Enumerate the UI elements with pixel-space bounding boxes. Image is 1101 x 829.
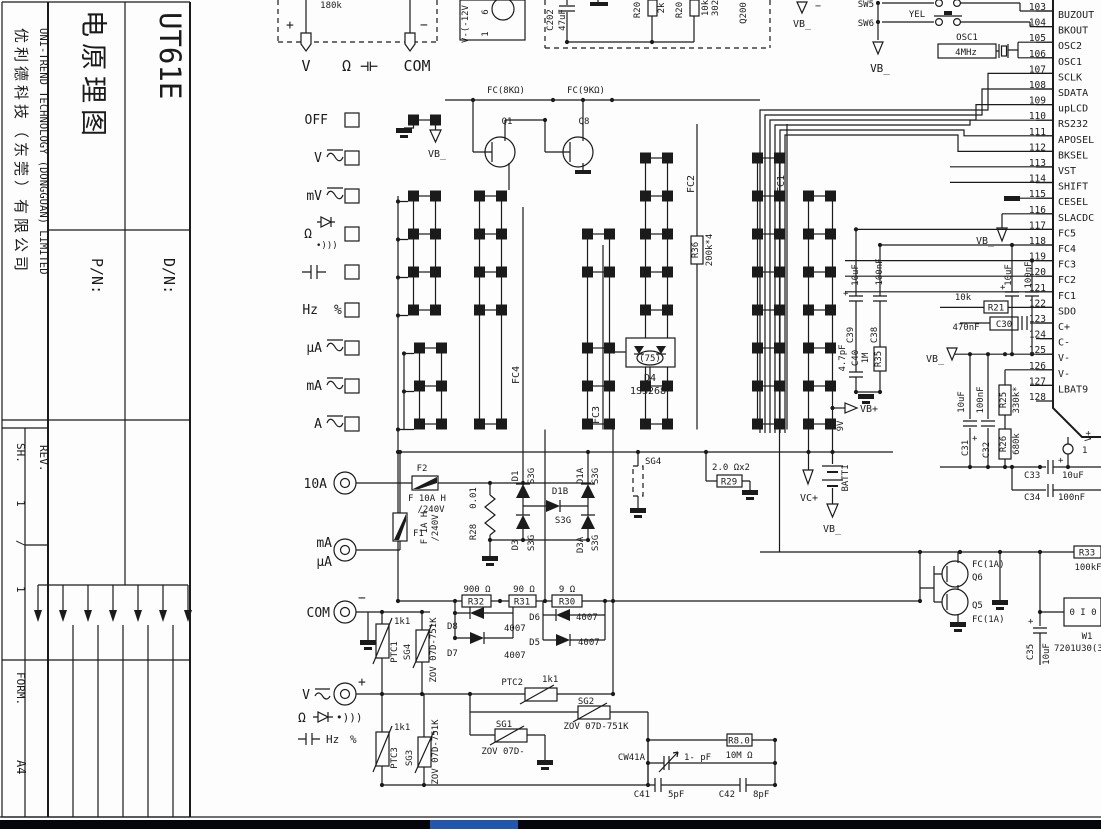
- pin-label: FC2: [1058, 275, 1076, 286]
- c40-ref: C40: [851, 350, 861, 366]
- junction-dot: [968, 352, 972, 356]
- switch-contact: [436, 343, 447, 354]
- jack-ma-label: mA: [316, 536, 332, 551]
- c38-ref: C38: [870, 327, 880, 343]
- d8-ref: D8: [447, 622, 458, 632]
- rotary-label: OFF: [305, 113, 329, 128]
- pushbutton-section: SW5 SW6 YEL VB_ OSC1 4MHz: [858, 0, 1053, 75]
- c30-value: 470nF: [952, 323, 979, 333]
- vb-minus-arrow-icon: [797, 2, 807, 13]
- sw6-label: SW6: [858, 19, 874, 29]
- rotary-label: mA: [306, 379, 322, 394]
- q5-ref: Q5: [972, 601, 983, 611]
- pin-label: V-: [1058, 353, 1070, 364]
- f1-rating-2: /240V: [431, 514, 441, 542]
- d7-ref: D7: [447, 649, 458, 659]
- q6-transistor: [942, 561, 968, 587]
- junction-dot: [646, 738, 650, 742]
- com-minus: −: [358, 591, 366, 606]
- junction-dot: [1066, 465, 1070, 469]
- r31-value: 90 Ω: [513, 585, 535, 595]
- acdc-icon: [327, 378, 343, 389]
- r202-body: [690, 0, 699, 16]
- ground-icon: [360, 640, 376, 645]
- ptc1-ref: PTC1: [390, 641, 400, 663]
- sg4-spark-gap: SG4: [630, 452, 661, 518]
- junction-dot: [1030, 352, 1034, 356]
- resistor-180k-value: 180k: [320, 1, 342, 11]
- junction-dot: [603, 599, 607, 603]
- d3-type: S3G: [527, 535, 537, 551]
- taskbar: [0, 820, 1101, 829]
- q5-type: FC(1A): [972, 615, 1005, 625]
- d4-mark: (75): [639, 354, 661, 364]
- junction-dot: [773, 783, 777, 787]
- switch-contact: [825, 305, 836, 316]
- d5-ref: D5: [529, 638, 540, 648]
- switch-contact: [640, 153, 651, 164]
- ground-icon: [950, 622, 966, 627]
- c42-value: 8pF: [753, 790, 769, 800]
- r36-resistor: R36 200k*4: [691, 234, 715, 267]
- jack-v-label: V: [302, 688, 310, 703]
- junction-dot: [650, 40, 654, 44]
- percent-label: %: [350, 733, 357, 746]
- pin-label: BUZOUT: [1058, 10, 1094, 21]
- junction-dot: [396, 275, 400, 279]
- sg2-ref: SG2: [578, 697, 594, 707]
- osc1-label: OSC1: [956, 33, 978, 43]
- q8-type: FC(9KΩ): [567, 86, 605, 96]
- ohm-symbol: Ω: [298, 711, 306, 726]
- d1-type: S3G: [527, 468, 537, 484]
- switch-contact: [430, 191, 441, 202]
- rotary-checkbox: [345, 417, 359, 431]
- c33-ref: C33: [1024, 471, 1040, 481]
- junction-dot: [878, 390, 882, 394]
- junction-dot: [402, 351, 406, 355]
- junction-dot: [854, 227, 858, 231]
- rotary-label: Hz: [302, 303, 318, 318]
- fc4-net-label: FC4: [511, 366, 522, 384]
- pin-label: C-: [1058, 338, 1070, 349]
- f1-rating-1: F 1A H: [420, 512, 430, 545]
- junction-dot: [806, 450, 810, 454]
- f2-ref: F2: [417, 464, 428, 474]
- r201-ref: R20: [633, 2, 643, 18]
- r28-ref: R28: [469, 524, 479, 540]
- vb-minus-label: VB_: [823, 524, 842, 535]
- d3a-type: S3G: [591, 535, 601, 551]
- v-plus-label: V+: [1084, 430, 1094, 441]
- pn-label: P/N:: [88, 258, 106, 294]
- polarity-plus: +: [843, 289, 849, 299]
- r33-ref: R33: [1079, 549, 1095, 559]
- rotary-function-list: OFFVmVΩ•)))Hz%µAmAA: [302, 113, 359, 432]
- form-label: FORM.: [14, 672, 27, 705]
- paper-size: A4: [14, 760, 28, 774]
- d3-ref: D3: [511, 540, 521, 551]
- r31-ref: R31: [514, 598, 530, 608]
- sg1-type: ZOV 07D-: [481, 747, 524, 757]
- c34-value: 100nF: [1058, 493, 1085, 503]
- sw5-label: SW5: [858, 0, 874, 10]
- pin-label: SCLK: [1058, 72, 1082, 83]
- pin-label: SLACDC: [1058, 213, 1094, 224]
- sh-label: SH.: [14, 443, 27, 463]
- vb-minus-label: VB_: [793, 19, 812, 30]
- r25-ref: R25: [999, 392, 1009, 408]
- d6-part: 4007: [576, 613, 598, 623]
- d8-part: 4007: [504, 624, 526, 634]
- junction-dot: [986, 465, 990, 469]
- right-rail-section: VB_ 10uF C31 + 100nF C32 R25 330k* R26 6…: [926, 348, 1101, 503]
- c40-value: 4.7pF: [838, 344, 848, 371]
- junction-dot: [402, 389, 406, 393]
- company-name-en: UNI-TREND TECHNOLOGY (DONGGUAN) LIMITED: [37, 28, 49, 275]
- ptc2-value: 1k1: [542, 675, 558, 685]
- junction-dot: [380, 610, 384, 614]
- jack-10a-label: 10A: [304, 477, 328, 492]
- c41-ref: C41: [634, 790, 650, 800]
- rotary-label: A: [314, 417, 322, 432]
- probe-v-label: V: [301, 57, 310, 75]
- vb-minus-label: VB_: [926, 354, 945, 365]
- switch-contact: [825, 267, 836, 278]
- regulator-pin1: 1: [481, 31, 491, 36]
- rotary-checkbox: [345, 265, 359, 279]
- junction-dot: [611, 692, 615, 696]
- junction-dot: [396, 427, 400, 431]
- junction-dot: [998, 550, 1002, 554]
- switch-contact: [825, 191, 836, 202]
- r36-ref: R36: [691, 242, 701, 258]
- ptc1-value: 1k1: [394, 617, 410, 627]
- q1-transistor: FC(8KΩ) Q1: [473, 86, 545, 190]
- probe-com-label: COM: [403, 57, 430, 75]
- r8-value: 10M Ω: [725, 751, 753, 761]
- switch-contact: [604, 229, 615, 240]
- junction-dot: [453, 611, 457, 615]
- junction-dot: [586, 538, 590, 542]
- q8-ref: Q8: [579, 117, 590, 127]
- junction-dot: [704, 450, 708, 454]
- switch-contact: [414, 343, 425, 354]
- junction-dot: [453, 636, 457, 640]
- yel-label: YEL: [909, 10, 925, 20]
- w1-positions: 0 I 0: [1069, 608, 1096, 618]
- vb-plus-label: VB+: [860, 404, 878, 415]
- junction-dot: [1038, 550, 1042, 554]
- capacitance-icon: [302, 265, 326, 279]
- junction-dot: [876, 20, 880, 24]
- acdc-icon: [315, 689, 330, 699]
- junction-dot: [958, 550, 962, 554]
- d4-diode-pair: (75) D4 1SS268: [612, 338, 675, 397]
- capacitance-icon: [298, 733, 320, 745]
- acdc-icon: [327, 416, 343, 427]
- pin-label: SDO: [1058, 306, 1076, 317]
- ic-pin-list: 103BUZOUT104BKOUT105OSC2106OSC1107SCLK10…: [1029, 2, 1094, 403]
- switch-contact: [825, 419, 836, 430]
- junction-dot: [498, 599, 502, 603]
- sw5-contact-icon: [954, 0, 961, 6]
- junction-dot: [611, 599, 615, 603]
- switch-contact: [496, 191, 507, 202]
- r28-value: 0.01: [469, 487, 479, 509]
- junction-dot: [830, 450, 834, 454]
- junction-dot: [1010, 352, 1014, 356]
- switch-contact: [825, 381, 836, 392]
- sheet-total: 1: [14, 586, 27, 593]
- q1-type: FC(8KΩ): [487, 86, 525, 96]
- filter-cap-block: + 10uF C39 100nF C38 4.7pF C40 R35 1M VB…: [833, 229, 888, 415]
- junction-dot: [420, 692, 424, 696]
- junction-dot: [543, 118, 547, 122]
- pin-label: RS232: [1058, 119, 1088, 130]
- junction-dot: [396, 599, 400, 603]
- polarity-plus: +: [1000, 283, 1006, 293]
- rotary-checkbox: [345, 189, 359, 203]
- d1b-type: S3G: [555, 516, 571, 526]
- f2-rating-1: F 10A H: [408, 494, 446, 504]
- off-row-parts: VB_: [396, 125, 447, 161]
- c31-plus: +: [972, 434, 978, 444]
- q200-ref: Q200: [739, 2, 749, 24]
- r36-value: 200k*4: [705, 234, 715, 267]
- junction-dot: [453, 599, 457, 603]
- r35-ref: R35: [874, 351, 884, 367]
- q6-type: FC(1A): [972, 560, 1005, 570]
- d1a-ref: D1A: [576, 467, 586, 484]
- switch-contact: [825, 343, 836, 354]
- doc-title: 电原理图: [77, 10, 108, 142]
- r30-ref: R30: [559, 598, 575, 608]
- pin-label: C+: [1058, 322, 1070, 333]
- d4-part: 1SS268: [630, 386, 666, 397]
- c34-ref: C34: [1024, 493, 1040, 503]
- protection-section: PTC2 1k1 SG2 ZOV 07D-751K SG1 ZOV 07D-: [470, 675, 648, 785]
- rotary-label: Ω: [304, 227, 312, 242]
- regulator-label: V-(-12V: [461, 4, 471, 43]
- pin1-circle-icon: [1063, 444, 1073, 454]
- c33-plus: +: [1058, 456, 1064, 466]
- matrix-column-wires: [398, 124, 833, 694]
- cw41a-ref: CW41A: [618, 753, 646, 763]
- switch-contact: [803, 191, 814, 202]
- junction-dot: [986, 352, 990, 356]
- rotary-checkbox: [345, 379, 359, 393]
- c39-value: 10uF: [851, 264, 861, 286]
- sg3-type: ZOV 07D-751K: [431, 719, 441, 785]
- pin-label: V-: [1058, 369, 1070, 380]
- junction-dot: [636, 450, 640, 454]
- d1b-ref: D1B: [552, 487, 568, 497]
- junction-dot: [1030, 259, 1034, 263]
- title-block: 优利德科技（东莞）有限公司 UNI-TREND TECHNOLOGY (DONG…: [2, 2, 192, 817]
- d7-part: 4007: [504, 651, 526, 661]
- r201-value: 2k: [657, 2, 667, 13]
- lower-left-section: COM − 1k1 PTC1 SG4 ZOV 07D-751K V + Ω •)…: [298, 591, 470, 785]
- sg3-ref: SG3: [405, 750, 415, 766]
- w1-part: 7201U30(3: [1054, 644, 1101, 654]
- junction-dot: [551, 98, 555, 102]
- junction-dot: [646, 783, 650, 787]
- sw5-contact-icon: [936, 0, 943, 6]
- junction-dot: [521, 481, 525, 485]
- switch-contact: [774, 153, 785, 164]
- rotary-label: µA: [306, 341, 322, 356]
- jack-com-label: COM: [307, 606, 331, 621]
- c32-ref: C32: [982, 442, 992, 458]
- junction-dot: [773, 761, 777, 765]
- r202-ref: R20: [675, 2, 685, 18]
- fc2-net-label: FC2: [686, 175, 697, 193]
- junction-dot: [396, 313, 400, 317]
- junction-dot: [565, 40, 569, 44]
- sheet-number: 1: [14, 500, 27, 507]
- pin-label: FC4: [1058, 244, 1076, 255]
- c41-value: 5pF: [668, 790, 684, 800]
- c42-ref: C42: [719, 790, 735, 800]
- junction-dot: [1010, 243, 1014, 247]
- junction-dot: [420, 610, 424, 614]
- junction-dot: [581, 98, 585, 102]
- battery-voltage: 9V: [836, 420, 846, 431]
- junction-dot: [830, 406, 834, 410]
- acdc-icon: [327, 188, 343, 199]
- r32-ref: R32: [468, 598, 484, 608]
- rotary-checkbox: [345, 227, 359, 241]
- pin-label: SDATA: [1058, 88, 1088, 99]
- junction-dot: [422, 783, 426, 787]
- pin-label: OSC2: [1058, 41, 1082, 52]
- junction-dot: [380, 692, 384, 696]
- junction-dot: [488, 481, 492, 485]
- junction-dot: [878, 243, 882, 247]
- rotary-checkbox: [345, 303, 359, 317]
- company-name-cn: 优利德科技（东莞）有限公司: [12, 28, 30, 275]
- pin-label: OSC1: [1058, 57, 1082, 68]
- vb-minus-arrow-icon: [827, 504, 838, 517]
- switch-contact: [662, 153, 673, 164]
- power-supply-section: V-(-12V 6 1 C202 47uF R20 2k R20 10k 302…: [460, 0, 821, 48]
- model-number: UT61E: [153, 12, 187, 99]
- probe-ohm-cap-label: Ω ⊣⊢: [342, 57, 378, 75]
- d1a-type: S3G: [591, 468, 601, 484]
- pin-label: CESEL: [1058, 197, 1088, 208]
- q1-ref: Q1: [502, 117, 513, 127]
- title-arrow-bus: [34, 420, 192, 817]
- c32-value: 100nF: [976, 386, 986, 413]
- ground-icon: [575, 170, 591, 174]
- r29-value: 2.0 Ωx2: [712, 463, 750, 473]
- jack-ua-label: µA: [316, 555, 332, 570]
- batt1-ref: BATT1: [841, 464, 851, 491]
- c39-ref: C39: [846, 327, 856, 343]
- part-302: 302: [711, 0, 721, 16]
- pin-label: upLCD: [1058, 104, 1088, 115]
- pin-label: BKOUT: [1058, 26, 1088, 37]
- pin-label: LBAT9: [1058, 384, 1088, 395]
- r29-resistor: 2.0 Ωx2 R29: [706, 452, 758, 500]
- junction-dot: [398, 450, 402, 454]
- junction-dot: [968, 465, 972, 469]
- vb-plus-arrow-icon: [845, 403, 857, 413]
- sw6-contact-icon: [936, 19, 943, 26]
- pin-label: FC5: [1058, 228, 1076, 239]
- r21-ref: R21: [988, 304, 1004, 314]
- output-stage: FC(1A) Q6 Q5 FC(1A) R33 100kF + C35 10uF…: [760, 546, 1101, 665]
- diode-icon: [313, 712, 333, 722]
- rotary-label: mV: [306, 189, 322, 204]
- v-probe-tip: [301, 33, 311, 51]
- switch-contact: [582, 229, 593, 240]
- regulator-pin6: 6: [481, 9, 491, 14]
- v-plus-mark: +: [358, 675, 366, 690]
- r30-value: 9 Ω: [559, 585, 576, 595]
- switch-contact: [825, 229, 836, 240]
- rotary-checkbox: [345, 341, 359, 355]
- junction-dot: [521, 538, 525, 542]
- dn-label: D/N:: [160, 258, 178, 294]
- pin-label: BKSEL: [1058, 150, 1088, 161]
- ptc3-value: 1k1: [394, 723, 410, 733]
- c35-value: 10uF: [1042, 643, 1052, 665]
- switch-contact: [408, 115, 419, 126]
- q5-transistor: [942, 589, 968, 615]
- rotary-checkbox: [345, 151, 359, 165]
- ground-icon: [992, 600, 1008, 605]
- ground-icon: [590, 2, 608, 6]
- probe-connector-box: + − 180k V Ω ⊣⊢ COM: [278, 0, 437, 75]
- r21-value: 10k: [955, 293, 972, 303]
- junction-dot: [646, 761, 650, 765]
- r202-value: 10k: [701, 0, 711, 16]
- schematic-sheet: 优利德科技（东莞）有限公司 UNI-TREND TECHNOLOGY (DONG…: [0, 0, 1101, 829]
- junction-dot: [1003, 465, 1007, 469]
- pin-label: FC1: [1058, 291, 1076, 302]
- c35-plus: +: [1028, 617, 1034, 627]
- divider-network: 900 Ω R32 90 Ω R31 9 Ω R30 D8 4007 D7 40…: [398, 585, 920, 661]
- switch-contact-matrix: [408, 115, 836, 430]
- c35-ref: C35: [1026, 644, 1036, 660]
- nested-bus-wires: [760, 73, 1053, 433]
- rev-label: REV.: [37, 445, 50, 472]
- d6-ref: D6: [529, 613, 540, 623]
- taskbar-accent: [430, 820, 518, 829]
- c38-value: 100nF: [875, 258, 885, 285]
- junction-dot: [586, 450, 590, 454]
- vc-plus-arrow-icon: [803, 470, 813, 484]
- fc3-net-label: FC3: [591, 406, 602, 424]
- probe-minus: −: [420, 18, 428, 33]
- acdc-icon: [327, 340, 343, 351]
- junction-dot: [471, 98, 475, 102]
- junction-dot: [918, 550, 922, 554]
- vb-minus-arrow-icon: [873, 42, 883, 54]
- d3a-ref: D3A: [576, 536, 586, 553]
- junction-dot: [380, 783, 384, 787]
- r29-ref: R29: [721, 478, 737, 488]
- battery-block: 9V BATT1 VB_ VC+: [800, 420, 851, 535]
- vc-plus-label: VC+: [800, 493, 818, 504]
- r32-value: 900 Ω: [463, 585, 491, 595]
- ground-icon: [1004, 196, 1020, 201]
- junction-dot: [1038, 610, 1042, 614]
- sheet-separator: /: [14, 540, 27, 547]
- ground-icon: [537, 760, 553, 765]
